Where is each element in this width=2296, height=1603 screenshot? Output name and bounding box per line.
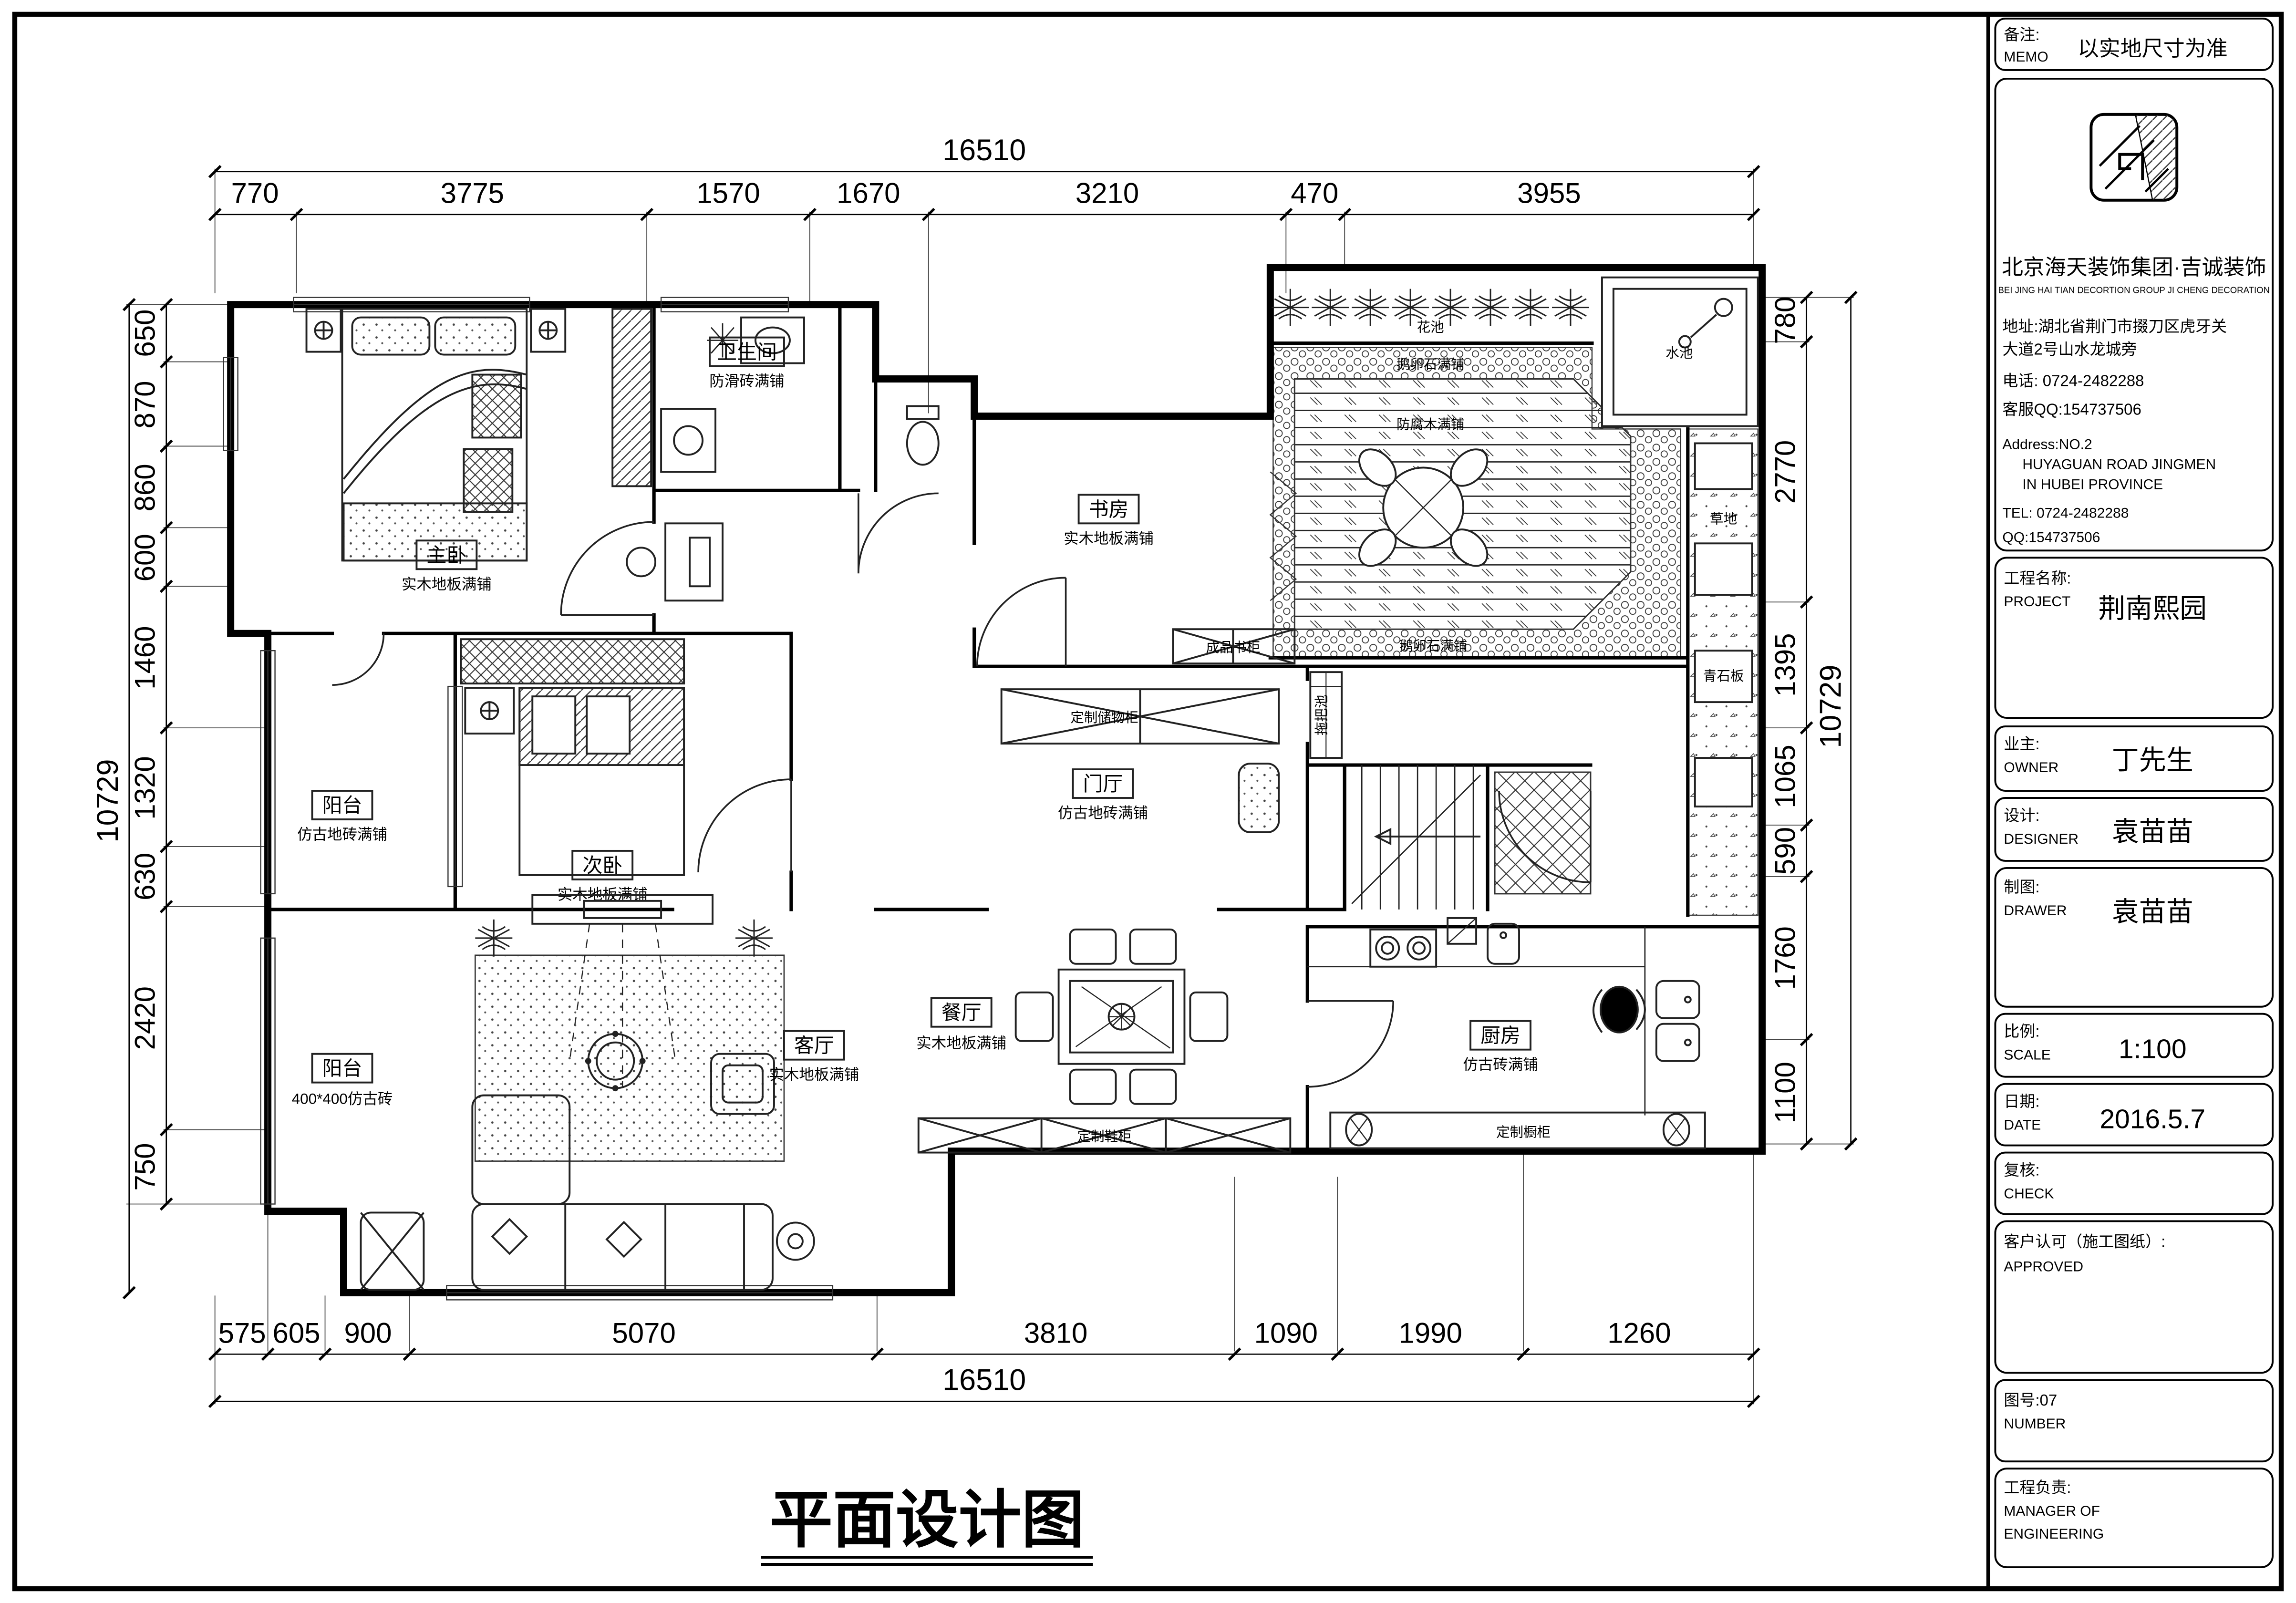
room-label-balcony1: 阳台 仿古地砖满铺 <box>297 791 387 843</box>
bath-floor: 防滑砖满铺 <box>709 373 784 390</box>
dim-top-0: 770 <box>231 177 279 209</box>
stairs <box>1352 765 1480 910</box>
dim-bottom-3: 5070 <box>612 1317 675 1349</box>
balcony2-floor: 400*400仿古砖 <box>292 1091 393 1107</box>
dim-left-5: 1320 <box>129 756 161 819</box>
scale-label-en: SCALE <box>2004 1047 2050 1063</box>
balcony2-name: 阳台 <box>322 1057 362 1080</box>
company-phone: 电话: 0724-2482288 <box>2002 372 2144 390</box>
manager-label-en1: MANAGER OF <box>2004 1503 2099 1519</box>
dim-bottom-2: 900 <box>344 1317 392 1349</box>
pebble-label-2: 鹅卵石满铺 <box>1399 639 1467 654</box>
dim-top-4: 3210 <box>1076 177 1139 209</box>
company-address-1: 地址:湖北省荆门市掇刀区虎牙关 <box>2002 318 2227 335</box>
dim-bottom-0: 575 <box>218 1317 266 1349</box>
dim-top-1: 3775 <box>441 177 504 209</box>
designer-label-cn: 设计: <box>2004 807 2039 824</box>
designer-label-en: DESIGNER <box>2004 831 2079 847</box>
owner-label-en: OWNER <box>2004 760 2058 776</box>
company-address-en-1: Address:NO.2 <box>2002 436 2092 452</box>
living-floor: 实木地板满铺 <box>769 1066 859 1083</box>
project-label-en: PROJECT <box>2004 594 2070 610</box>
approved-label-cn: 客户认可（施工图纸）: <box>2004 1232 2165 1250</box>
dining-name: 餐厅 <box>941 1002 982 1024</box>
dim-bottom-4: 3810 <box>1024 1317 1087 1349</box>
room-label-dining: 餐厅 实木地板满铺 <box>916 998 1006 1052</box>
study-name: 书房 <box>1089 498 1129 520</box>
hall-furniture <box>1002 672 1342 832</box>
room-label-kitchen: 厨房 仿古砖满铺 <box>1463 1021 1538 1073</box>
approved-label-en: APPROVED <box>2004 1259 2083 1274</box>
dim-right-6: 1100 <box>1769 1062 1801 1123</box>
dim-top-2: 1570 <box>696 177 760 209</box>
bathroom-fixtures <box>661 318 939 472</box>
dim-bottom-total: 16510 <box>942 1363 1026 1396</box>
company-address-2: 大道2号山水龙城旁 <box>2002 341 2137 358</box>
date-label-cn: 日期: <box>2004 1093 2039 1110</box>
dim-left-2: 860 <box>129 464 161 511</box>
dim-right-1: 2770 <box>1769 440 1801 504</box>
dim-right-3: 1065 <box>1769 745 1801 808</box>
room-label-study: 书房 实木地板满铺 <box>1064 495 1154 547</box>
date-label-en: DATE <box>2004 1117 2041 1133</box>
master-bedroom-furniture <box>307 309 652 561</box>
owner-value: 丁先生 <box>2112 745 2193 776</box>
company-name: 北京海天装饰集团·吉诚装饰 <box>2002 255 2266 279</box>
study-floor: 实木地板满铺 <box>1064 530 1154 547</box>
shoe-cabinet-label: 定制鞋柜 <box>1077 1129 1132 1145</box>
company-logo <box>2091 114 2177 200</box>
room-label-balcony2: 阳台 400*400仿古砖 <box>292 1054 393 1107</box>
dim-left-7: 2420 <box>129 986 161 1050</box>
number-label-cn: 图号:07 <box>2004 1391 2057 1409</box>
dim-bottom-7: 1260 <box>1607 1317 1671 1349</box>
check-label-cn: 复核: <box>2004 1161 2039 1179</box>
project-value: 荆南熙园 <box>2098 593 2207 624</box>
drawer-value: 袁苗苗 <box>2112 897 2193 927</box>
mop-sink-label: 拖把池 <box>1314 694 1329 735</box>
sheet-title-text: 平面设计图 <box>770 1485 1085 1555</box>
number-label-en: NUMBER <box>2004 1416 2066 1432</box>
title-block: 备注: MEMO 以实地尺寸为准 北京海天装饰集团·吉诚装饰 BEI JING … <box>1995 19 2273 1567</box>
lawn-label: 草地 <box>1710 511 1737 527</box>
hall-name: 门厅 <box>1083 773 1123 795</box>
corridor-desk <box>627 523 723 600</box>
second-bedroom-furniture <box>461 639 684 875</box>
memo-value: 以实地尺寸为准 <box>2078 36 2228 61</box>
project-label-cn: 工程名称: <box>2004 569 2071 587</box>
dim-left-6: 630 <box>129 853 161 900</box>
kitchen-cabinet-label: 定制橱柜 <box>1496 1125 1551 1140</box>
dim-top-3: 1670 <box>837 177 900 209</box>
bath-name: 卫生间 <box>717 341 777 363</box>
scale-label-cn: 比例: <box>2004 1023 2039 1040</box>
dim-right-total: 10729 <box>1814 665 1848 748</box>
dim-right-0: 780 <box>1769 297 1801 344</box>
living-name: 客厅 <box>794 1034 834 1057</box>
sheet-title: 平面设计图 <box>761 1485 1093 1564</box>
dim-left-8: 750 <box>129 1143 161 1191</box>
dim-top-5: 470 <box>1291 177 1338 209</box>
balcony2-objects <box>361 1212 424 1290</box>
company-qq-en: QQ:154737506 <box>2002 529 2100 545</box>
company-address-en-3: IN HUBEI PROVINCE <box>2022 476 2163 492</box>
storage-cabinet-label: 定制储物柜 <box>1070 710 1138 725</box>
company-tel-en: TEL: 0724-2482288 <box>2002 505 2129 521</box>
scale-value: 1:100 <box>2119 1034 2187 1065</box>
dim-right-5: 1760 <box>1769 926 1801 990</box>
flower-bed-label: 花池 <box>1417 320 1444 335</box>
drawer-label-en: DRAWER <box>2004 903 2067 919</box>
living-rug <box>475 955 784 1161</box>
dim-bottom-5: 1090 <box>1254 1317 1318 1349</box>
dim-bottom-1: 605 <box>273 1317 321 1349</box>
manager-label-en2: ENGINEERING <box>2004 1526 2104 1542</box>
dim-left-1: 870 <box>129 381 161 428</box>
company-qq: 客服QQ:154737506 <box>2002 400 2141 418</box>
dim-left-0: 650 <box>129 310 161 357</box>
drawer-label-cn: 制图: <box>2004 878 2039 896</box>
pebble-label-1: 鹅卵石满铺 <box>1396 357 1464 372</box>
dining-floor: 实木地板满铺 <box>916 1035 1006 1052</box>
manager-label-cn: 工程负责: <box>2004 1479 2071 1496</box>
bookcase-label: 成品书柜 <box>1206 640 1260 655</box>
dim-left-3: 600 <box>129 534 161 581</box>
dim-right-4: 590 <box>1769 827 1801 875</box>
memo-label-cn: 备注: <box>2004 26 2039 43</box>
floor-plan-sheet: 备注: MEMO 以实地尺寸为准 北京海天装饰集团·吉诚装饰 BEI JING … <box>0 0 2296 1603</box>
hall-floor: 仿古地砖满铺 <box>1058 805 1148 821</box>
pool-label: 水池 <box>1665 346 1693 361</box>
room-label-hall: 门厅 仿古地砖满铺 <box>1058 769 1148 821</box>
kitchen-name: 厨房 <box>1480 1024 1520 1047</box>
dim-bottom-6: 1990 <box>1398 1317 1462 1349</box>
company-address-en-2: HUYAGUAN ROAD JINGMEN <box>2022 456 2216 472</box>
balcony1-floor: 仿古地砖满铺 <box>297 826 387 843</box>
check-label-en: CHECK <box>2004 1186 2054 1202</box>
owner-label-cn: 业主: <box>2004 735 2039 753</box>
dim-top-6: 3955 <box>1517 177 1581 209</box>
second-name: 次卧 <box>582 854 622 877</box>
balcony1-name: 阳台 <box>322 794 362 817</box>
dim-top-total: 16510 <box>942 134 1026 167</box>
kitchen-floor: 仿古砖满铺 <box>1463 1056 1538 1073</box>
designer-value: 袁苗苗 <box>2112 817 2193 847</box>
dim-left-total: 10729 <box>91 759 124 842</box>
master-floor: 实木地板满铺 <box>402 576 492 592</box>
company-name-en: BEI JING HAI TIAN DECORTION GROUP JI CHE… <box>1998 285 2270 295</box>
dim-right-2: 1395 <box>1769 633 1801 696</box>
memo-label-en: MEMO <box>2004 49 2048 65</box>
deck-label: 防腐木满铺 <box>1396 417 1464 432</box>
stone-label: 青石板 <box>1703 669 1744 684</box>
dim-left-4: 1460 <box>129 626 161 689</box>
master-name: 主卧 <box>426 544 466 566</box>
date-value: 2016.5.7 <box>2099 1104 2205 1135</box>
